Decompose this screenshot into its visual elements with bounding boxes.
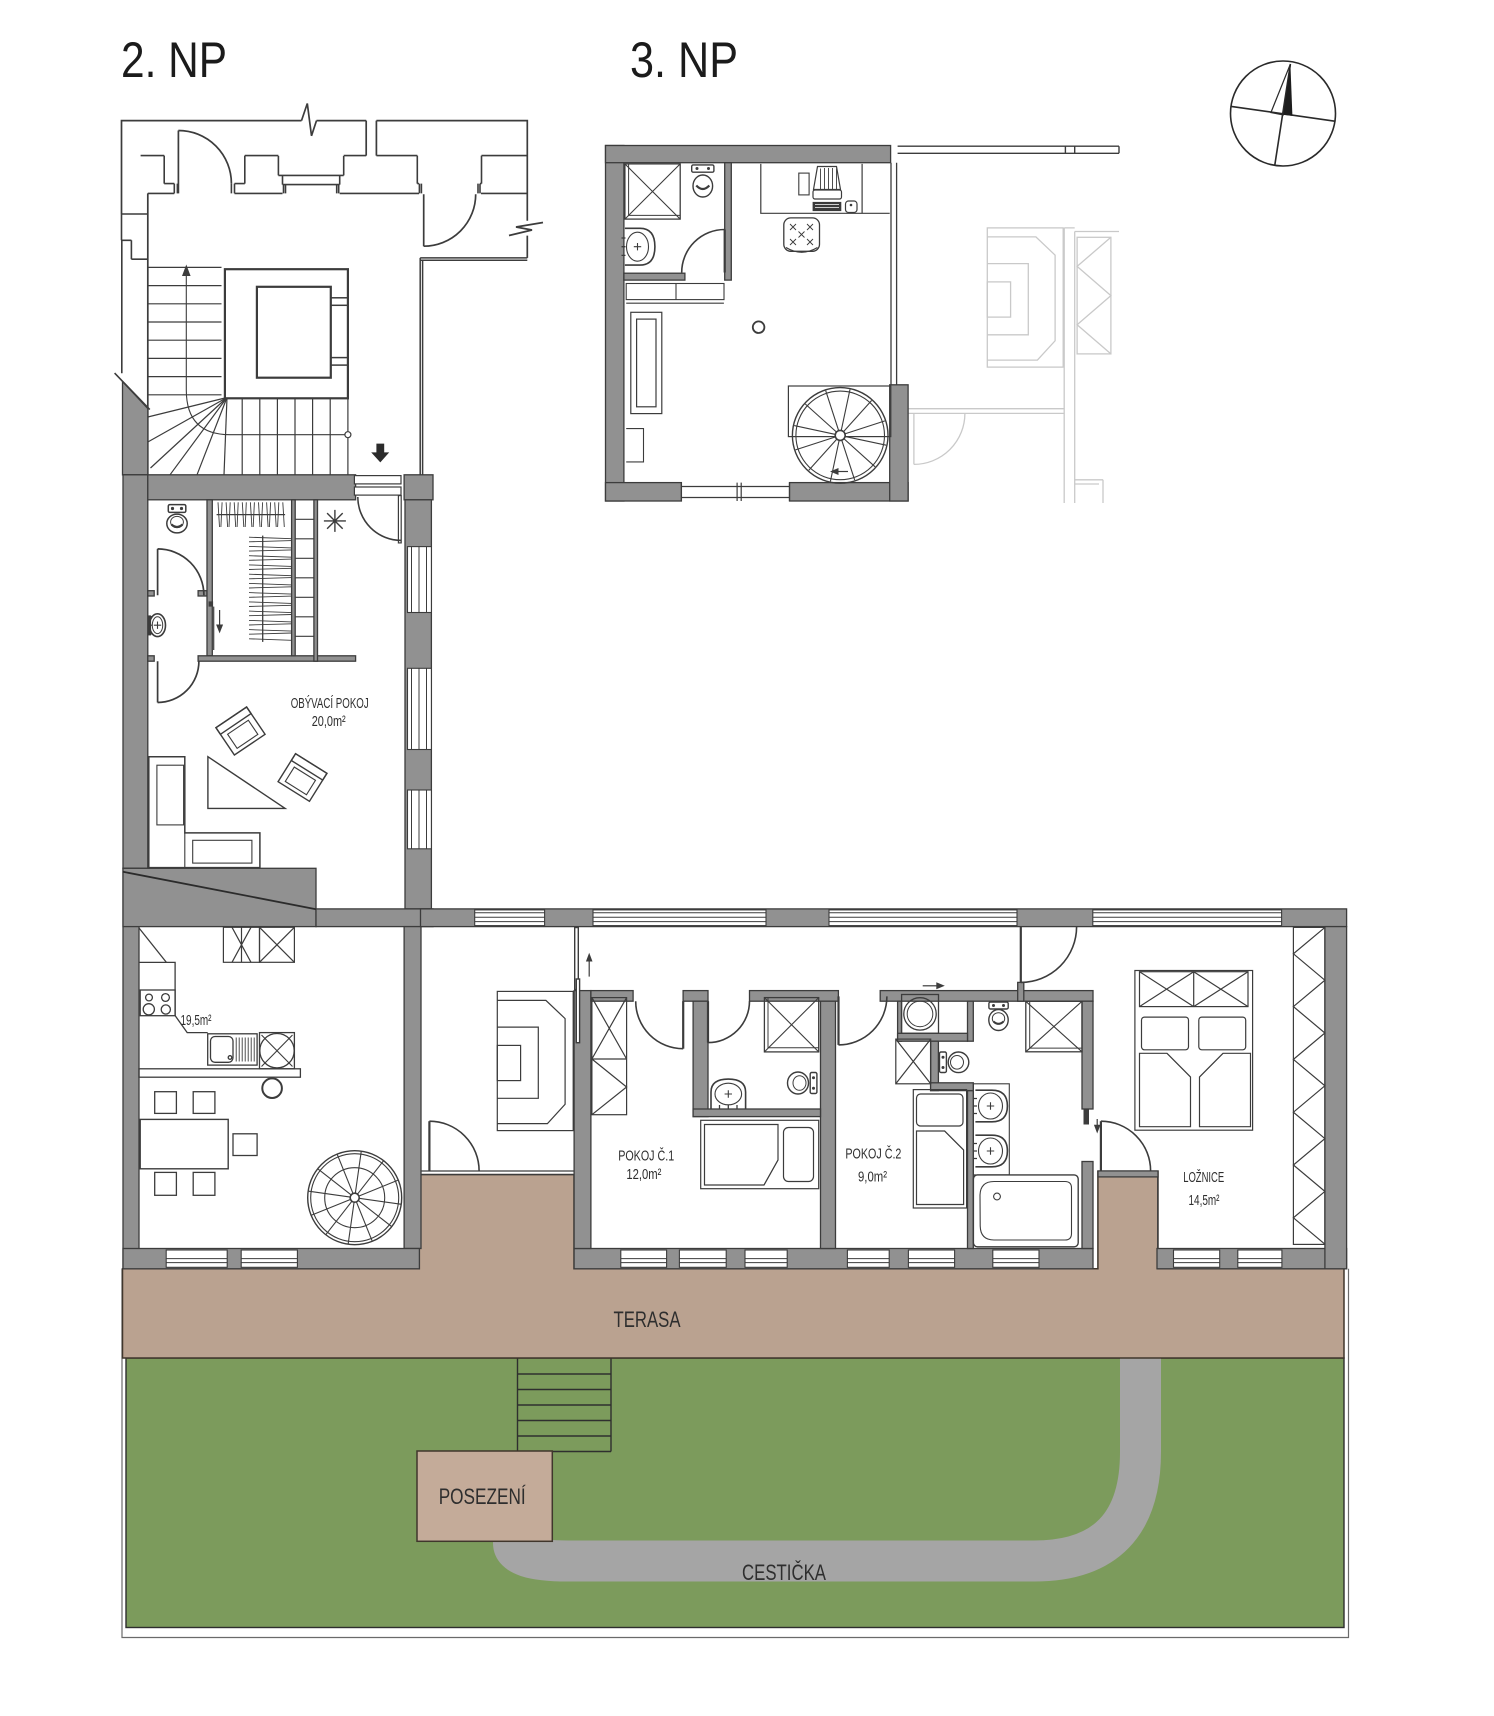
svg-text:2. NP: 2. NP <box>121 32 227 88</box>
svg-text:POKOJ Č.1: POKOJ Č.1 <box>618 1148 674 1165</box>
svg-text:CESTIČKA: CESTIČKA <box>742 1560 826 1585</box>
svg-text:LOŽNICE: LOŽNICE <box>1183 1169 1224 1186</box>
svg-text:3. NP: 3. NP <box>630 32 738 88</box>
svg-text:POSEZENÍ: POSEZENÍ <box>439 1484 527 1509</box>
svg-text:9,0m²: 9,0m² <box>858 1169 887 1186</box>
svg-text:12,0m²: 12,0m² <box>626 1166 661 1183</box>
svg-text:POKOJ Č.2: POKOJ Č.2 <box>845 1145 901 1162</box>
svg-text:TERASA: TERASA <box>614 1307 681 1332</box>
svg-text:OBÝVACÍ POKOJ: OBÝVACÍ POKOJ <box>291 695 369 712</box>
svg-text:14,5m²: 14,5m² <box>1189 1192 1220 1209</box>
svg-text:19,5m²: 19,5m² <box>181 1012 212 1029</box>
svg-text:20,0m²: 20,0m² <box>312 713 346 730</box>
